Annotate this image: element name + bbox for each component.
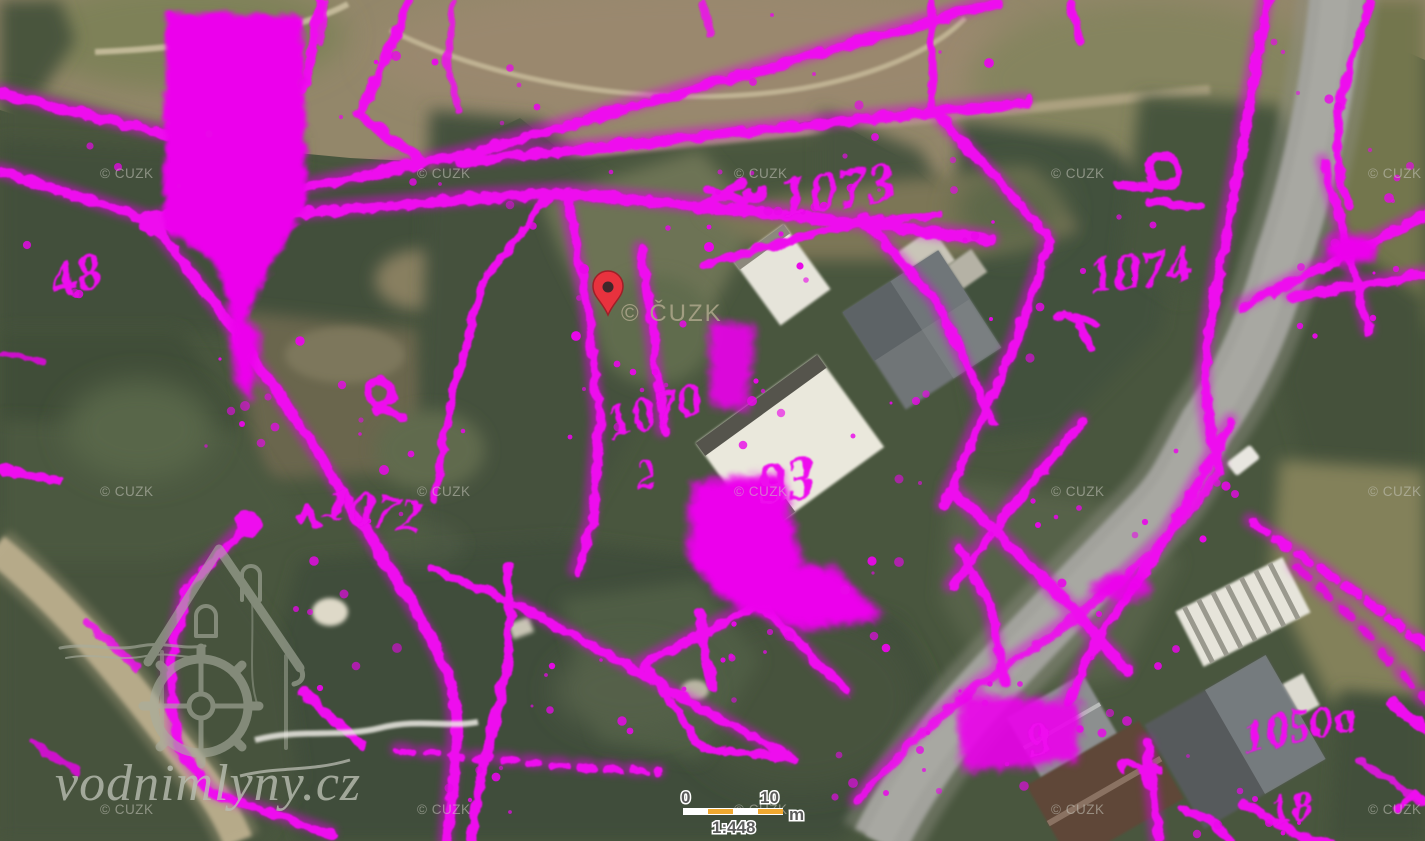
svg-text:1:448: 1:448 xyxy=(712,818,755,837)
svg-text:© CUZK: © CUZK xyxy=(1051,802,1104,817)
svg-text:© CUZK: © CUZK xyxy=(417,802,470,817)
svg-text:© CUZK: © CUZK xyxy=(1051,484,1104,499)
svg-text:10: 10 xyxy=(760,788,779,807)
svg-text:m: m xyxy=(789,805,804,824)
svg-text:0: 0 xyxy=(681,788,690,807)
svg-text:© CUZK: © CUZK xyxy=(417,166,470,181)
svg-text:© CUZK: © CUZK xyxy=(417,484,470,499)
svg-text:© CUZK: © CUZK xyxy=(734,484,787,499)
svg-text:© CUZK: © CUZK xyxy=(1051,166,1104,181)
svg-text:© CUZK: © CUZK xyxy=(1368,484,1421,499)
svg-text:93: 93 xyxy=(750,442,817,515)
svg-text:© CUZK: © CUZK xyxy=(734,166,787,181)
svg-text:© CUZK: © CUZK xyxy=(100,484,153,499)
svg-text:© CUZK: © CUZK xyxy=(100,166,153,181)
svg-text:© CUZK: © CUZK xyxy=(1368,802,1421,817)
svg-text:© ČUZK: © ČUZK xyxy=(621,299,723,327)
svg-text:18: 18 xyxy=(1263,777,1316,833)
svg-text:vodnimlyny.cz: vodnimlyny.cz xyxy=(55,755,361,812)
svg-text:© CUZK: © CUZK xyxy=(1368,166,1421,181)
